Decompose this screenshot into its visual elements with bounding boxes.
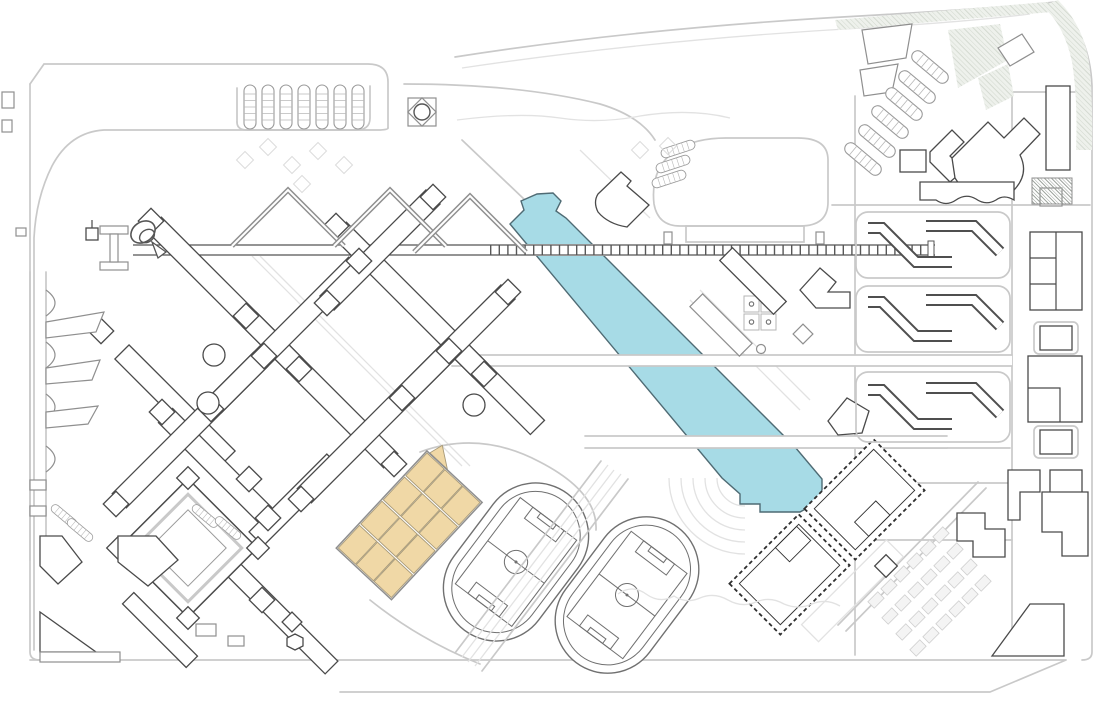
site-plan-canvas	[0, 0, 1096, 705]
hexagon-kiosk	[287, 634, 303, 650]
framed-square-2	[1040, 430, 1072, 454]
framed-square-1	[1040, 326, 1072, 350]
crossing-road-1	[452, 355, 1012, 366]
tower-bar	[1046, 86, 1070, 170]
hatch-square	[1032, 178, 1072, 204]
cluster-building	[1028, 356, 1082, 422]
stall-row	[280, 85, 292, 129]
stall-row	[316, 85, 328, 129]
small-dark-building	[900, 150, 926, 172]
stall-row	[352, 85, 364, 129]
stall-row	[298, 85, 310, 129]
light-building-1	[862, 24, 912, 64]
site-plan-svg	[0, 0, 1096, 705]
pavilion-icon	[408, 98, 436, 126]
round-kiosk	[757, 345, 766, 354]
stall-row	[262, 85, 274, 129]
stall-row	[334, 85, 346, 129]
stall-row	[244, 85, 256, 129]
